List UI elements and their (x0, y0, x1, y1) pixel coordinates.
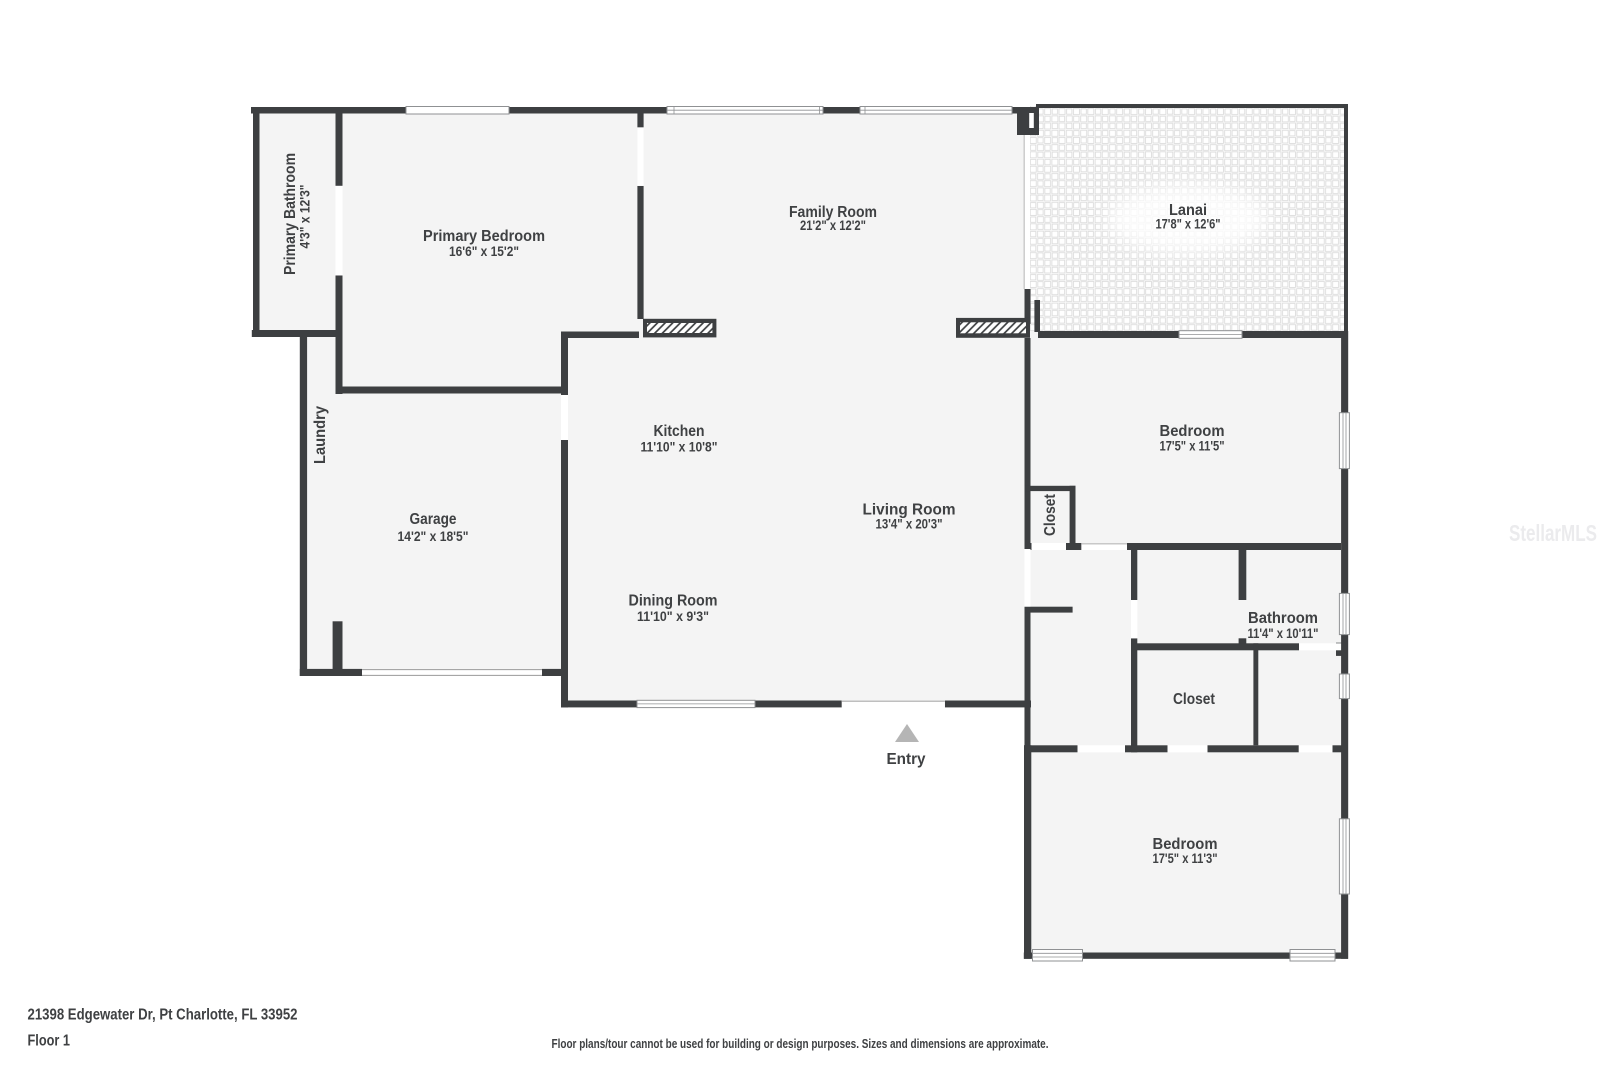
svg-text:Dining Room: Dining Room (629, 593, 718, 610)
svg-text:21'2" x 12'2": 21'2" x 12'2" (800, 218, 866, 233)
svg-text:Floor plans/tour cannot be use: Floor plans/tour cannot be used for buil… (552, 1037, 1049, 1051)
svg-text:17'5" x 11'3": 17'5" x 11'3" (1153, 851, 1218, 866)
svg-text:17'5" x 11'5": 17'5" x 11'5" (1160, 439, 1225, 454)
svg-text:21398 Edgewater Dr, Pt Charlot: 21398 Edgewater Dr, Pt Charlotte, FL 339… (28, 1007, 298, 1024)
svg-text:StellarMLS: StellarMLS (1509, 520, 1597, 546)
svg-text:Primary Bathroom: Primary Bathroom (282, 153, 299, 275)
svg-text:16'6" x 15'2": 16'6" x 15'2" (449, 244, 519, 259)
svg-text:Bedroom: Bedroom (1160, 423, 1225, 440)
svg-text:4'3" x 12'3": 4'3" x 12'3" (298, 185, 313, 249)
svg-text:Laundry: Laundry (312, 406, 329, 464)
svg-text:11'10" x 9'3": 11'10" x 9'3" (637, 609, 709, 624)
svg-text:Primary Bedroom: Primary Bedroom (423, 228, 545, 245)
svg-text:Closet: Closet (1173, 691, 1215, 708)
svg-text:13'4" x 20'3": 13'4" x 20'3" (876, 517, 943, 532)
svg-text:17'8" x 12'6": 17'8" x 12'6" (1156, 217, 1221, 232)
svg-text:Entry: Entry (887, 751, 926, 768)
svg-text:Bathroom: Bathroom (1248, 610, 1318, 627)
svg-text:Kitchen: Kitchen (654, 423, 705, 440)
svg-text:14'2" x 18'5": 14'2" x 18'5" (398, 529, 469, 544)
svg-text:11'4" x 10'11": 11'4" x 10'11" (1248, 626, 1319, 641)
svg-text:Closet: Closet (1042, 494, 1059, 536)
svg-text:Floor 1: Floor 1 (28, 1033, 71, 1050)
svg-text:11'10" x 10'8": 11'10" x 10'8" (641, 440, 718, 455)
svg-text:Garage: Garage (410, 511, 457, 528)
